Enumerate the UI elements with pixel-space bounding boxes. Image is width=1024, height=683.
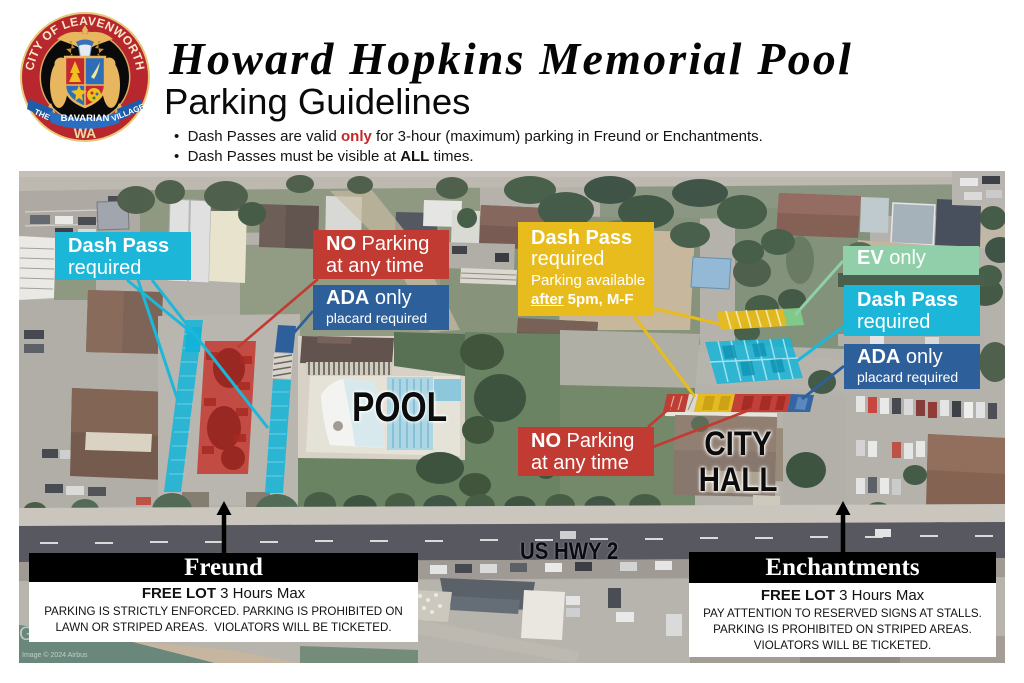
svg-text:BAVARIAN: BAVARIAN xyxy=(61,113,110,124)
svg-text:WA: WA xyxy=(74,125,97,141)
svg-text:Image © 2024 Airbus: Image © 2024 Airbus xyxy=(22,651,88,659)
